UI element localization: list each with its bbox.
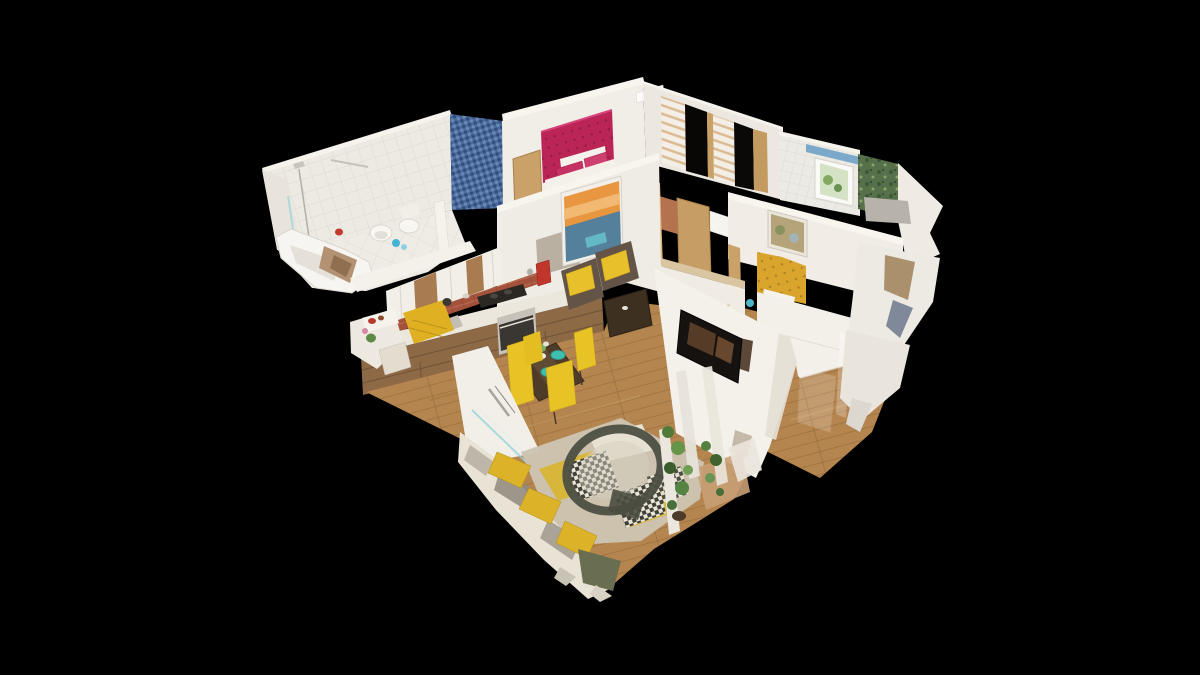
tub-red-bottle — [335, 229, 343, 236]
plant2-leaf-4 — [716, 488, 724, 496]
plant-leaf-1 — [662, 426, 674, 438]
plant-leaf-2 — [671, 441, 685, 455]
plant-leaf-3 — [664, 462, 676, 474]
plant2-leaf-3 — [705, 473, 715, 483]
dining-chair-4 — [523, 331, 543, 366]
dining-chair-1 — [574, 327, 596, 371]
cooktop-ring-2 — [504, 290, 512, 295]
apartment-model — [262, 77, 943, 602]
teal-plate-2 — [551, 351, 565, 360]
bedside-lamp-blue — [746, 299, 754, 307]
picture-art-detail-2 — [789, 233, 799, 243]
cleaning-bucket — [392, 239, 400, 247]
vase-plant-green — [366, 334, 376, 343]
vase-flowers-white — [543, 342, 549, 347]
dollhouse-render — [0, 0, 1200, 675]
upper-cabinet-wood-2 — [466, 255, 484, 296]
plant-pot — [672, 511, 686, 521]
dollhouse-3d-viewport[interactable] — [0, 0, 1200, 675]
washbasin-bowl — [375, 231, 388, 239]
moka-pot — [527, 269, 533, 276]
hall-curtain-left-stripes — [661, 96, 686, 171]
dining-chair-2 — [546, 360, 576, 412]
coffee-machine-red — [536, 260, 551, 286]
coffee-table-cup — [622, 306, 628, 310]
plant-leaf-6 — [683, 465, 693, 475]
picture-art-detail-1 — [775, 225, 785, 235]
cooktop-ring-1 — [490, 294, 498, 299]
hall-curtain-right-stripes — [713, 115, 735, 186]
kettle — [443, 298, 452, 306]
hall-doorway-dark-left — [685, 104, 708, 177]
cleaning-bottle — [401, 244, 407, 250]
tray-food-1 — [368, 318, 376, 324]
window-garden-leaf-1 — [823, 175, 833, 185]
gray-debris — [864, 197, 911, 224]
hall-door-frame-mid — [707, 112, 714, 179]
hall-doorway-dark-right — [734, 122, 754, 190]
hall-frame-ragged — [753, 129, 768, 193]
radiator — [710, 211, 731, 238]
plant-leaf-5 — [667, 500, 677, 510]
plant2-leaf-1 — [701, 441, 711, 451]
counter-bowl — [463, 294, 470, 299]
plant-leaf-4 — [675, 481, 689, 495]
toilet — [399, 219, 419, 233]
window-garden-leaf-2 — [834, 184, 842, 192]
tray-food-2 — [378, 316, 384, 321]
plant2-leaf-2 — [710, 454, 722, 466]
glass-side-table — [798, 367, 836, 432]
bath1-mosaic-texture — [450, 114, 503, 210]
vase-flowers-pink — [362, 328, 368, 334]
